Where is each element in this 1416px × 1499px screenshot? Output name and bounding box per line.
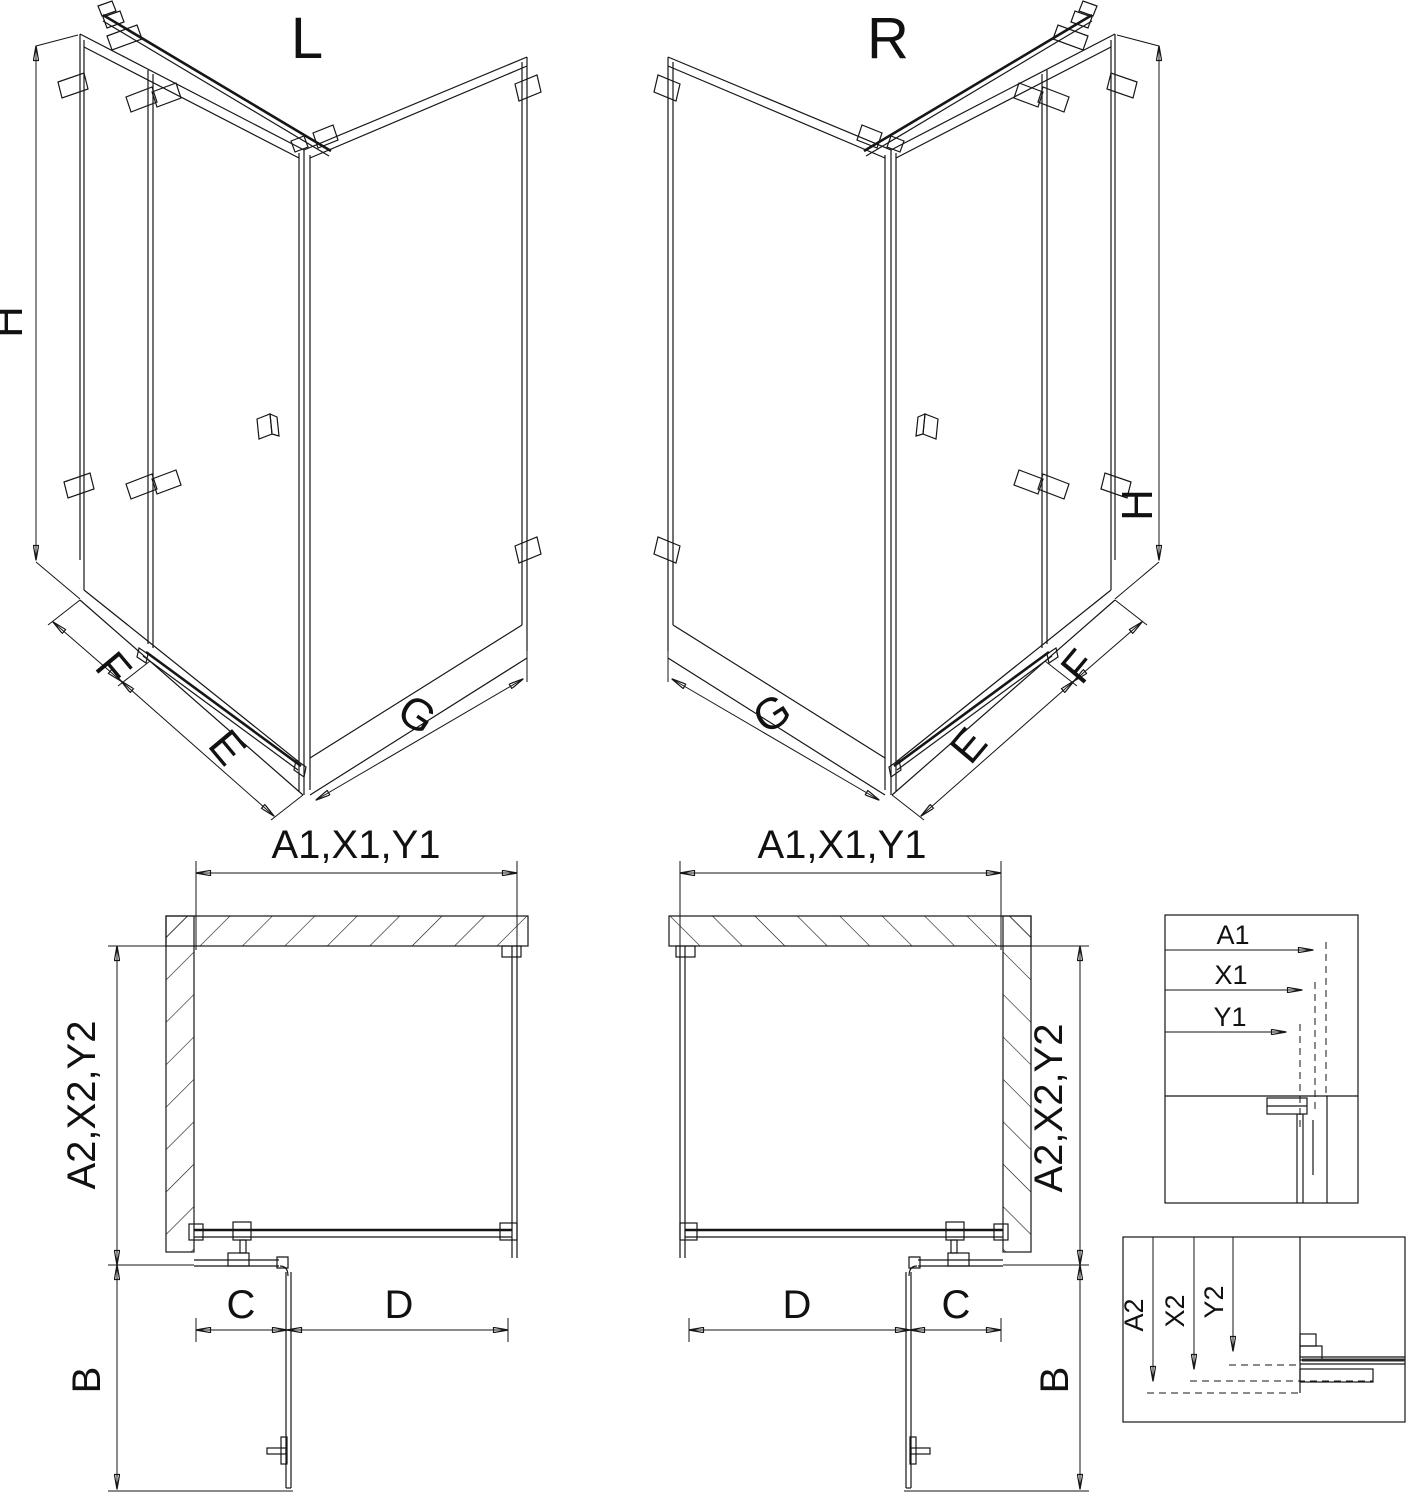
dim-label-side-left: G: [389, 685, 444, 745]
view-title-left: L: [291, 6, 323, 71]
plan-depth-label-right: A2,X2,Y2: [1027, 1023, 1071, 1192]
detail-width-label-y1: Y1: [1213, 1002, 1246, 1032]
plan-fixed-label-left: C: [227, 1283, 256, 1327]
plan-projection-label-right: B: [1033, 1367, 1077, 1394]
detail-depth-label-y2: Y2: [1199, 1285, 1229, 1318]
dim-label-height-right: H: [1113, 489, 1162, 521]
detail-depth-label-a2: A2: [1119, 1298, 1149, 1331]
detail-depth-label-x2: X2: [1160, 1294, 1190, 1327]
plan-fixed-label-right: C: [942, 1283, 971, 1327]
iso-view-left: L H F E G: [0, 1, 541, 820]
detail-width-label-a1: A1: [1216, 920, 1249, 950]
plan-door-label-left: D: [385, 1283, 414, 1327]
plan-width-label-left: A1,X1,Y1: [271, 823, 440, 867]
dim-label-door-left: E: [199, 721, 255, 775]
iso-view-right: R H F E G: [654, 1, 1162, 820]
technical-drawing-page: L H F E G R H F E G A1,X1,Y1 A2,X2,Y2 C …: [0, 0, 1416, 1499]
plan-view-right: A1,X1,Y1 A2,X2,Y2 C D B: [669, 823, 1089, 1491]
view-title-right: R: [867, 6, 909, 71]
dim-label-fixed-left: F: [86, 643, 141, 695]
dim-label-side-right: G: [744, 684, 799, 744]
shower-enclosure-diagram: L H F E G R H F E G A1,X1,Y1 A2,X2,Y2 C …: [0, 0, 1416, 1499]
plan-door-label-right: D: [783, 1283, 812, 1327]
dim-label-height-left: H: [0, 306, 32, 338]
plan-view-left: A1,X1,Y1 A2,X2,Y2 C D B: [60, 823, 528, 1491]
detail-depth-offsets: A2 X2 Y2: [1119, 1237, 1405, 1422]
plan-projection-label-left: B: [65, 1367, 109, 1394]
detail-width-label-x1: X1: [1214, 960, 1247, 990]
plan-depth-label-left: A2,X2,Y2: [60, 1020, 104, 1189]
plan-width-label-right: A1,X1,Y1: [757, 823, 926, 867]
detail-width-offsets: A1 X1 Y1: [1165, 915, 1358, 1203]
